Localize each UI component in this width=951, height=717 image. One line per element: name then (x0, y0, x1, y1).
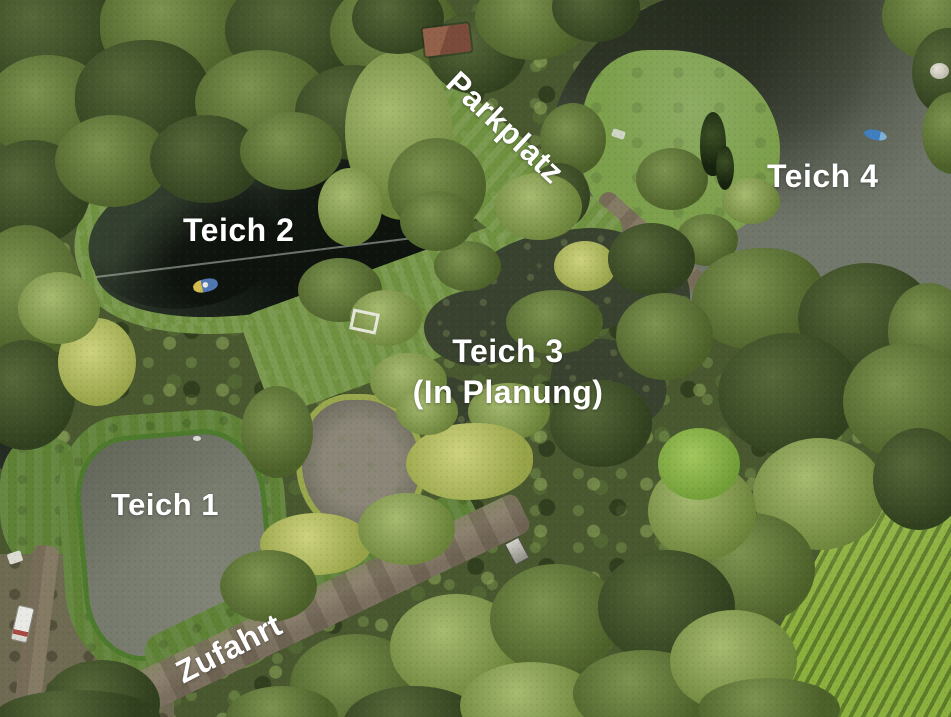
rowing-boat-teich2 (192, 277, 219, 295)
aerial-photo: Parkplatz Teich 4 Teich 2 Teich 3 (In Pl… (0, 0, 951, 717)
trailer (10, 605, 35, 644)
bench (611, 128, 626, 140)
dome-tent (930, 63, 949, 79)
label-teich-3: Teich 3 (In Planung) (377, 331, 639, 413)
label-teich-3-line2: (In Planung) (377, 372, 639, 413)
small-hut (504, 537, 529, 566)
label-teich-2: Teich 2 (183, 212, 294, 249)
conifer-tree (716, 146, 734, 190)
water-fleck (193, 436, 201, 441)
label-teich-1: Teich 1 (111, 487, 219, 523)
boat-teich4 (863, 128, 888, 143)
goal-frame (349, 308, 380, 334)
label-teich-3-line1: Teich 3 (377, 331, 639, 372)
label-teich-4: Teich 4 (767, 158, 878, 195)
cabin-red-roof (422, 23, 471, 56)
white-object (7, 550, 24, 565)
